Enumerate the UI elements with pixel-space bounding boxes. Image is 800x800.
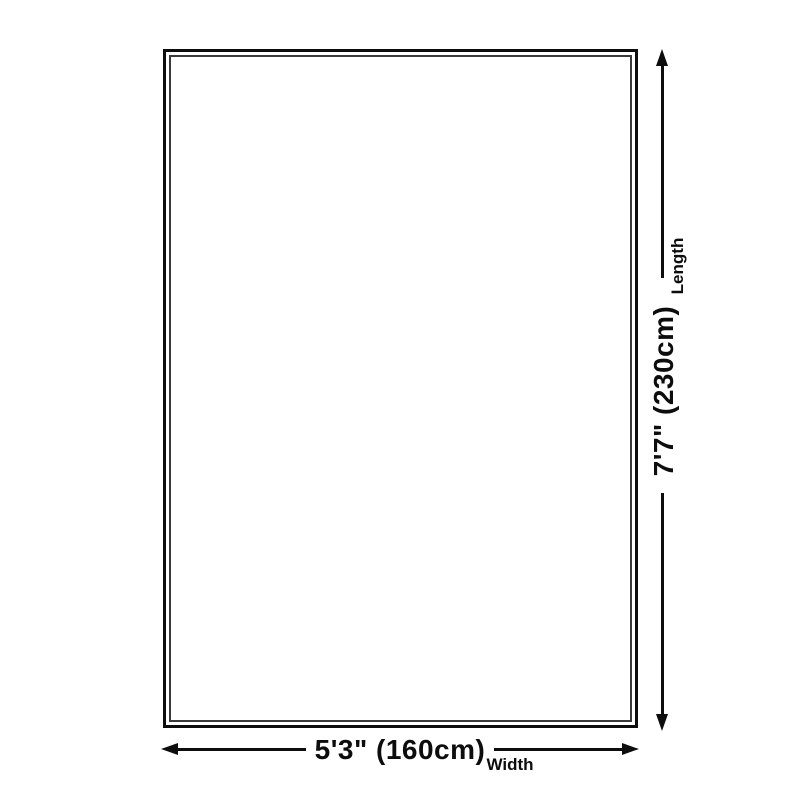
- width-line-left: [176, 748, 306, 751]
- length-line-top: [661, 64, 664, 278]
- rug-outline: [163, 49, 638, 728]
- arrow-right-icon: [622, 743, 639, 755]
- width-value: 5'3" (160cm): [315, 734, 486, 766]
- width-line-right: [494, 748, 624, 751]
- rug-dimension-diagram: Length 7'7" (230cm) 5'3" (160cm) Width: [0, 0, 800, 800]
- length-line-bottom: [661, 493, 664, 716]
- arrow-down-icon: [656, 714, 668, 731]
- length-label: Length: [668, 238, 688, 295]
- rug-inner-border: [169, 55, 632, 722]
- length-value: 7'7" (230cm): [648, 306, 680, 477]
- width-label: Width: [486, 755, 533, 775]
